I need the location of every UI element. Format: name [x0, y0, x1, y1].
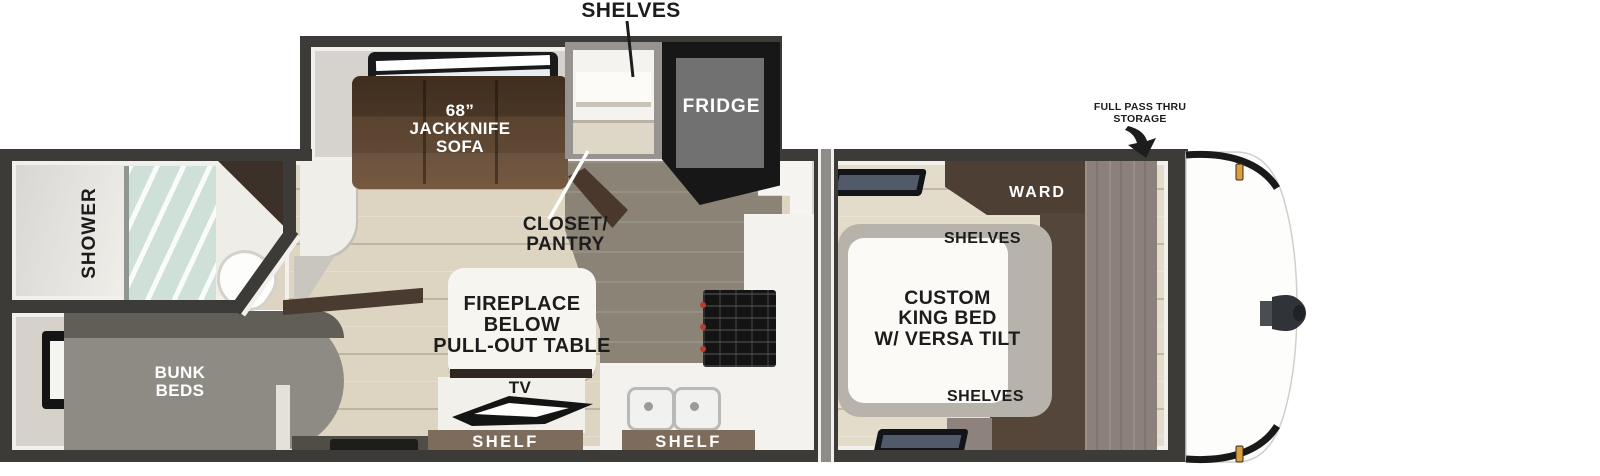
fridge-label: FRIDGE: [664, 97, 779, 117]
hitch-ball-socket: [1293, 305, 1305, 321]
overlay-graphics: [0, 0, 1600, 476]
sofa-label: 68” JACKKNIFE SOFA: [352, 102, 568, 156]
diagonal-wall-trim: [243, 236, 299, 315]
bathroom-diagonal-wall: [235, 230, 293, 311]
marker-light-top: [1236, 164, 1243, 180]
closet-pantry-label: CLOSET/ PANTRY: [508, 215, 623, 255]
floorplan-canvas: SHELVES FULL PASS THRU STORAGE 68” JACKK…: [0, 0, 1600, 476]
shelves-callout-label: SHELVES: [561, 0, 701, 22]
shelf-left-label: SHELF: [428, 434, 583, 451]
bunk-beds-label: BUNK BEDS: [105, 364, 255, 400]
shelves-pointer-line: [627, 21, 633, 77]
storage-callout-label: FULL PASS THRU STORAGE: [1076, 101, 1204, 125]
table-label: FIREPLACE BELOW PULL-OUT TABLE: [422, 294, 622, 357]
shelf-right-label: SHELF: [622, 434, 755, 451]
bed-shelves-top-label: SHELVES: [925, 231, 1040, 248]
marker-light-bottom: [1236, 446, 1243, 462]
hitch-bracket: [1260, 301, 1272, 326]
tv-label: TV: [498, 379, 542, 397]
shower-label: SHOWER: [25, 173, 155, 293]
bed-shelves-bottom-label: SHELVES: [928, 389, 1043, 406]
storage-arrow: [1125, 126, 1156, 158]
ward-label: WARD: [985, 185, 1090, 202]
closet-pointer-line: [549, 151, 588, 219]
king-bed-label: CUSTOM KING BED W/ VERSA TILT: [840, 288, 1055, 349]
